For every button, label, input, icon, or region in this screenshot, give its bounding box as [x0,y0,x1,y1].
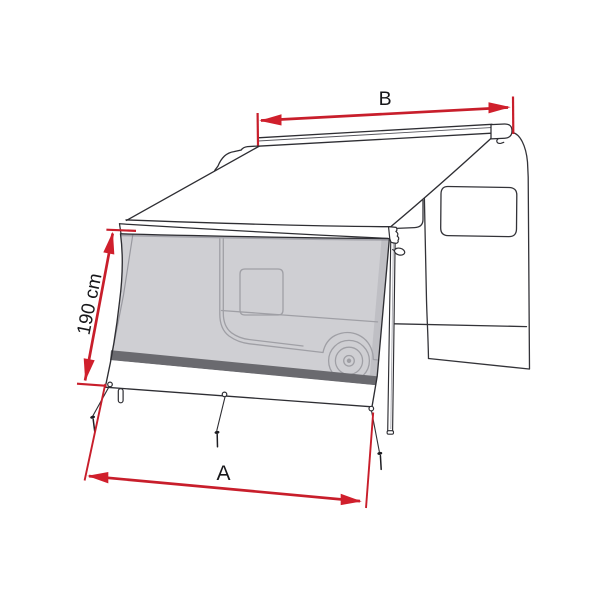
svg-text:B: B [379,88,392,110]
svg-text:190 cm: 190 cm [74,272,107,337]
svg-text:A: A [217,462,231,485]
